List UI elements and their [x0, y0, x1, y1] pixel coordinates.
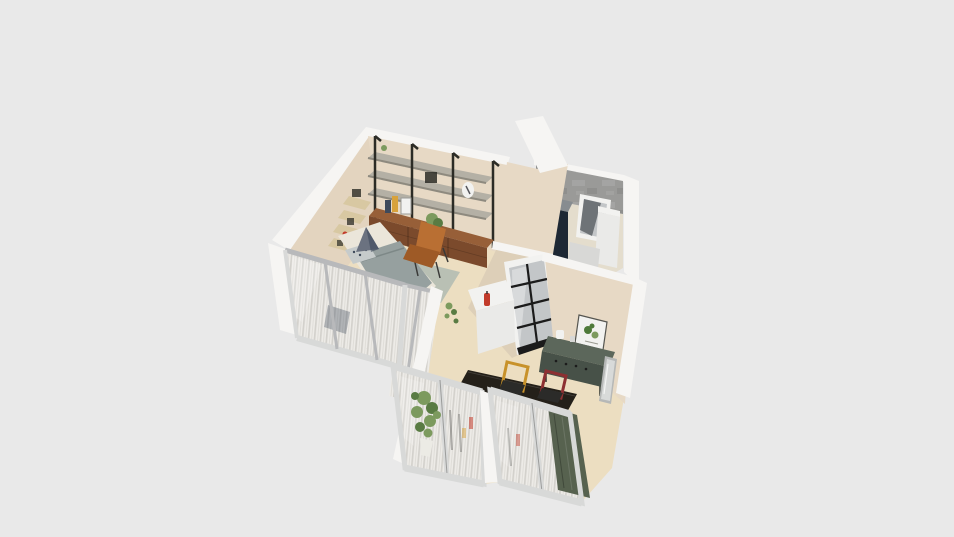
- red-extinguisher: [484, 293, 490, 306]
- floorplan-canvas: [0, 0, 954, 537]
- white-kettle: [556, 330, 564, 339]
- interior-red-hint: [516, 434, 520, 446]
- yellow-vase: [392, 196, 398, 212]
- dark-books: [425, 172, 437, 183]
- shelf-item: [347, 218, 354, 225]
- apartment-3d-render: [0, 0, 954, 537]
- small-plant: [381, 145, 387, 151]
- white-frame: [401, 198, 411, 214]
- kitchen-right-wall: [624, 175, 639, 286]
- shelf-books: [352, 189, 361, 197]
- navy-frame: [385, 200, 391, 213]
- small-item: [570, 336, 575, 342]
- interior-yellow-hint: [462, 428, 466, 438]
- interior-red-hint: [469, 417, 473, 429]
